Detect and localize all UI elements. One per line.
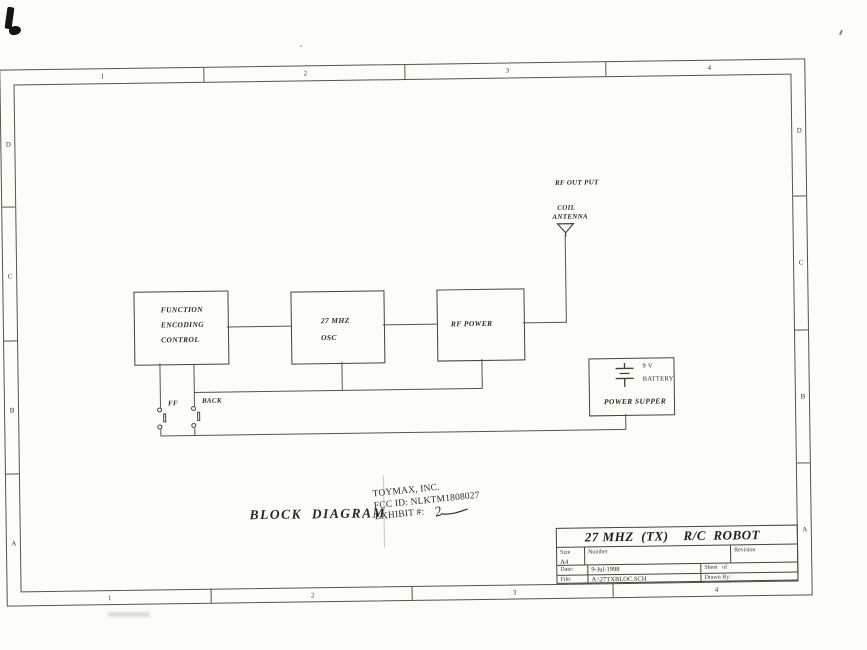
size-value: A4 xyxy=(560,559,584,565)
block-label: FUNCTION xyxy=(161,305,203,315)
zone-label-top: 3 xyxy=(500,64,514,76)
wire xyxy=(194,428,195,435)
date-label: Date: xyxy=(560,566,587,572)
switch-terminal xyxy=(191,423,196,428)
battery-label: BATTERY xyxy=(643,375,674,382)
block-label: POWER SUPPER xyxy=(604,396,666,406)
drawn-by-cell: Drawn By: xyxy=(700,572,797,583)
rf-output-label: RF OUT PUT xyxy=(555,178,599,187)
battery-voltage-label: 9 V xyxy=(642,363,652,370)
coil-label: COIL xyxy=(557,204,575,212)
block-diagram-caption: BLOCK DIAGRAM xyxy=(249,505,386,523)
scanned-schematic-page: { "frame": { "zones_top": ["1","2","3","… xyxy=(0,0,867,650)
block-label: CONTROL xyxy=(161,335,199,345)
date-label-cell: Date: xyxy=(557,565,588,574)
pen-stroke-icon xyxy=(439,505,470,516)
zone-tick xyxy=(797,462,810,463)
zone-tick xyxy=(2,206,15,207)
revision-cell: Revision xyxy=(731,545,797,563)
zone-label-right: D xyxy=(792,124,806,136)
number-cell: Number xyxy=(585,545,731,564)
zone-tick xyxy=(605,62,606,76)
file-label: File: xyxy=(560,576,587,582)
file-value: A:\27TXBLOC.SCH xyxy=(591,574,700,583)
sheet-cell: Sheet of xyxy=(700,563,797,573)
ff-switch-label: FF xyxy=(168,399,178,407)
function-encoding-control-block: FUNCTION ENCODING CONTROL xyxy=(133,290,229,365)
number-label: Number xyxy=(588,547,730,555)
block-label: ENCODING xyxy=(161,320,204,330)
switch-actuator xyxy=(197,412,200,421)
scan-speck xyxy=(839,30,843,35)
file-drawn-row: File: A:\27TXBLOC.SCH Drawn By: xyxy=(557,572,797,585)
zone-tick xyxy=(211,589,212,603)
size-cell: Size A4 xyxy=(557,548,585,565)
antenna-icon xyxy=(556,223,574,237)
zone-label-right: B xyxy=(796,390,810,402)
zone-tick xyxy=(613,583,614,597)
zone-label-top: 1 xyxy=(95,70,109,82)
zone-label-left: A xyxy=(7,537,21,549)
zone-label-bottom: 3 xyxy=(508,586,522,598)
scan-speck xyxy=(108,612,150,617)
title-block: 27 MHZ (TX) R/C ROBOT Size A4 Number Rev… xyxy=(556,525,799,584)
zone-tick xyxy=(404,65,405,79)
zone-label-right: A xyxy=(798,523,812,535)
switch-terminal xyxy=(191,406,196,411)
zone-label-bottom: 4 xyxy=(710,584,724,596)
wire xyxy=(160,429,161,435)
size-label: Size xyxy=(560,550,584,556)
power-supply-block: 9 V BATTERY POWER SUPPER xyxy=(588,357,675,416)
zone-tick xyxy=(203,68,204,82)
zone-label-bottom: 1 xyxy=(103,592,117,604)
back-switch-label: BACK xyxy=(202,397,222,405)
zone-tick xyxy=(795,329,808,330)
rf-power-block: RF POWER xyxy=(436,288,525,361)
zone-tick xyxy=(412,586,413,600)
zone-label-left: D xyxy=(1,138,15,150)
block-label: 27 MHZ xyxy=(321,316,350,325)
zone-tick xyxy=(6,473,19,474)
revision-label: Revision xyxy=(734,547,797,554)
scan-speck xyxy=(300,45,302,47)
osc-block: 27 MHZ OSC xyxy=(290,290,385,364)
drawn-by-label: Drawn By: xyxy=(704,573,797,580)
battery-icon xyxy=(613,363,635,389)
zone-label-top: 2 xyxy=(298,67,312,79)
date-value-cell: 9-Jul-1998 xyxy=(588,564,700,574)
zone-label-right: C xyxy=(794,256,808,268)
wire xyxy=(625,414,626,429)
drawing-title: 27 MHZ (TX) R/C ROBOT xyxy=(557,527,760,546)
switch-terminal xyxy=(157,424,162,429)
date-value: 9-Jul-1998 xyxy=(591,565,700,574)
scan-smudge xyxy=(8,25,22,37)
block-label: OSC xyxy=(321,333,337,342)
sheet-label: Sheet of xyxy=(704,564,797,571)
zone-tick xyxy=(4,340,17,341)
block-label: RF POWER xyxy=(451,319,493,329)
file-value-cell: A:\27TXBLOC.SCH xyxy=(588,573,700,584)
drawing-sheet: 1 2 3 4 1 2 3 4 D C B A D C B A FUNCTION… xyxy=(0,58,813,606)
file-label-cell: File: xyxy=(557,575,588,585)
zone-tick xyxy=(793,195,806,196)
antenna-label: ANTENNA xyxy=(552,212,588,220)
switch-actuator xyxy=(163,413,166,422)
zone-label-left: C xyxy=(3,270,17,282)
zone-label-bottom: 2 xyxy=(306,589,320,601)
switch-terminal xyxy=(157,407,162,412)
zone-label-top: 4 xyxy=(702,62,716,74)
zone-label-left: B xyxy=(5,404,19,416)
